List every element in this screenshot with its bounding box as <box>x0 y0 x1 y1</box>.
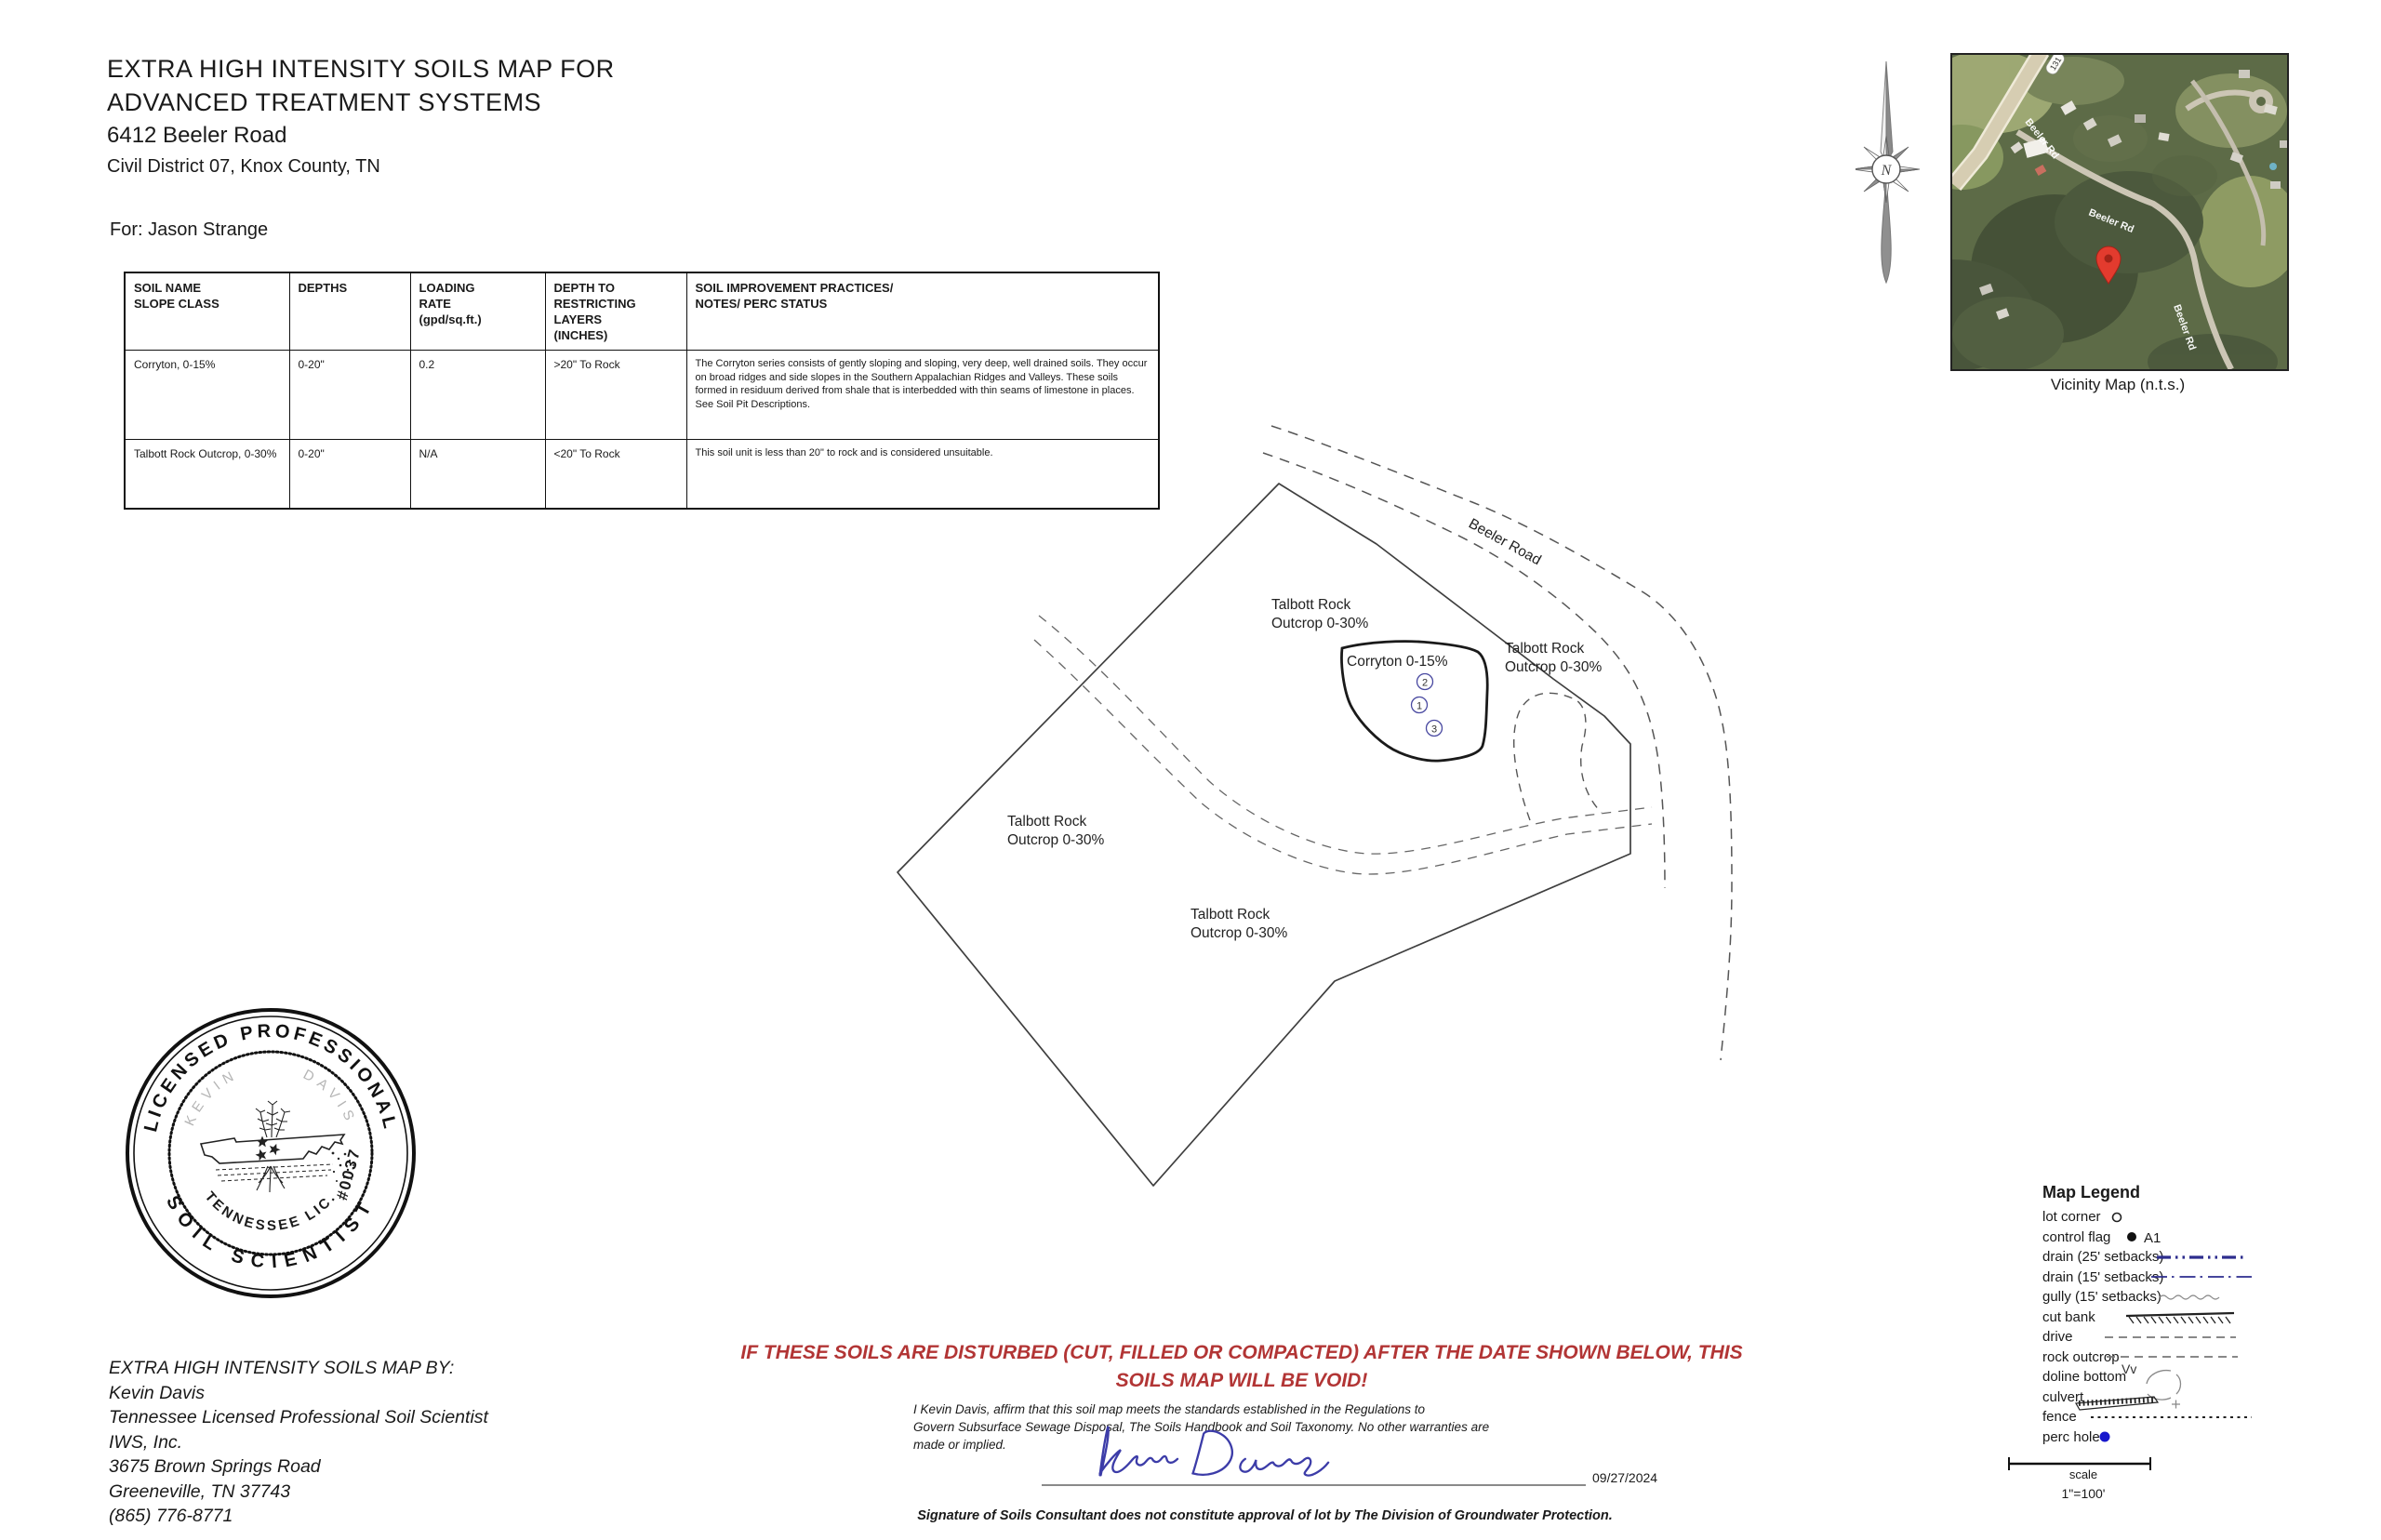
road-name-label: Beeler Road <box>1466 516 1544 569</box>
legend-symbols: A1 Vv <box>2035 1183 2268 1462</box>
soils-map: Beeler Road 2 1 3 Talbott Rock Outcrop 0… <box>884 418 1739 1255</box>
rock-outcrop-vv-icon: Vv <box>2122 1361 2136 1376</box>
signature-line <box>1042 1484 1586 1486</box>
author-city: Greeneville, TN 37743 <box>109 1480 488 1505</box>
rock-outcrop-dashed-area <box>1514 693 1602 820</box>
svg-text:DAVIS: DAVIS <box>300 1067 359 1128</box>
seal-tennessee-art <box>201 1101 354 1192</box>
perc-hole-3: 3 <box>1431 724 1437 736</box>
cell-rate: 0.2 <box>410 351 545 440</box>
svg-text:LICENSED PROFESSIONAL: LICENSED PROFESSIONAL <box>140 1021 401 1135</box>
cut-bank-hatch <box>2129 1317 2230 1323</box>
header-loading-rate: LOADING RATE (gpd/sq.ft.) <box>410 272 545 351</box>
soil-unit-labels: Talbott Rock Outcrop 0-30% Talbott Rock … <box>1007 597 1602 941</box>
header-depth-restricting: DEPTH TO RESTRICTING LAYERS (INCHES) <box>545 272 686 351</box>
author-phone: (865) 776-8771 <box>109 1504 488 1529</box>
svg-text:TENNESSEE LIC.: TENNESSEE LIC. <box>202 1188 340 1234</box>
road-inner-edge <box>1263 453 1665 888</box>
talbott-label: Talbott Rock <box>1271 597 1351 613</box>
author-block: EXTRA HIGH INTENSITY SOILS MAP BY: Kevin… <box>109 1356 488 1529</box>
cell-rate: N/A <box>410 440 545 509</box>
corryton-label: Corryton 0-15% <box>1347 654 1448 670</box>
seal-inner-name-right: DAVIS <box>300 1067 359 1128</box>
culvert-icon <box>2076 1397 2158 1410</box>
header-practices: SOIL IMPROVEMENT PRACTICES/ NOTES/ PERC … <box>686 272 1159 351</box>
signature-date: 09/27/2024 <box>1592 1470 1657 1485</box>
gully-icon <box>2160 1295 2219 1299</box>
cell-restricting: <20" To Rock <box>545 440 686 509</box>
vicinity-caption: Vicinity Map (n.t.s.) <box>1950 376 2285 394</box>
header-soil-name: SOIL NAME SLOPE CLASS <box>125 272 289 351</box>
north-arrow-compass: N <box>1856 54 1921 286</box>
compass-n-letter: N <box>1881 163 1893 179</box>
scale-label: scale <box>2000 1467 2167 1481</box>
perc-hole-2: 2 <box>1422 678 1428 689</box>
page-title-line1: EXTRA HIGH INTENSITY SOILS MAP FOR <box>107 52 615 86</box>
vicinity-map: 131 Beeler Rd Beeler Rd Beeler Rd <box>1950 53 2289 371</box>
seal-license-state: TENNESSEE LIC. <box>202 1188 340 1234</box>
perc-hole-markers: 2 1 3 <box>1412 674 1443 737</box>
cell-soil-name: Corryton, 0-15% <box>125 351 289 440</box>
client-line: For: Jason Strange <box>110 219 268 241</box>
map-legend: Map Legend lot corner control flag drain… <box>2035 1183 2268 1462</box>
talbott-label: Outcrop 0-30% <box>1190 925 1287 941</box>
author-heading: EXTRA HIGH INTENSITY SOILS MAP BY: <box>109 1356 488 1381</box>
seal-license-number: #0037 <box>333 1146 364 1201</box>
scale-value: 1"=100' <box>2000 1486 2167 1501</box>
author-company: IWS, Inc. <box>109 1430 488 1455</box>
talbott-label: Outcrop 0-30% <box>1271 616 1368 631</box>
perc-hole-1: 1 <box>1417 701 1422 712</box>
talbott-label: Outcrop 0-30% <box>1505 659 1602 675</box>
title-block: EXTRA HIGH INTENSITY SOILS MAP FOR ADVAN… <box>107 52 615 178</box>
signature-disclaimer: Signature of Soils Consultant does not c… <box>818 1508 1711 1523</box>
talbott-label: Talbott Rock <box>1505 641 1585 657</box>
perc-hole-icon <box>2100 1432 2110 1442</box>
talbott-label: Outcrop 0-30% <box>1007 832 1104 848</box>
seal-inner-name-left: KEVIN <box>181 1067 241 1129</box>
author-name: Kevin Davis <box>109 1381 488 1406</box>
vicinity-satellite-image: 131 Beeler Rd Beeler Rd Beeler Rd <box>1952 55 2287 369</box>
signature-kevin-davis <box>1086 1417 1393 1490</box>
lot-corner-icon <box>2113 1214 2122 1222</box>
table-header-row: SOIL NAME SLOPE CLASS DEPTHS LOADING RAT… <box>125 272 1159 351</box>
control-flag-tag: A1 <box>2144 1230 2161 1246</box>
page-title-line2: ADVANCED TREATMENT SYSTEMS <box>107 86 615 119</box>
cell-depths: 0-20" <box>289 440 410 509</box>
author-credential: Tennessee Licensed Professional Soil Sci… <box>109 1405 488 1430</box>
cut-bank-icon <box>2126 1313 2234 1316</box>
seal-arc-top-text: LICENSED PROFESSIONAL <box>140 1021 401 1135</box>
professional-seal: LICENSED PROFESSIONAL SOIL SCIENTIST KEV… <box>121 1002 420 1302</box>
cell-soil-name: Talbott Rock Outcrop, 0-30% <box>125 440 289 509</box>
warning-text: IF THESE SOILS ARE DISTURBED (CUT, FILLE… <box>716 1339 1767 1395</box>
header-depths: DEPTHS <box>289 272 410 351</box>
district-line: Civil District 07, Knox County, TN <box>107 156 615 178</box>
author-street: 3675 Brown Springs Road <box>109 1454 488 1480</box>
talbott-label: Talbott Rock <box>1190 907 1270 923</box>
talbott-label: Talbott Rock <box>1007 814 1087 830</box>
control-flag-icon <box>2127 1232 2136 1241</box>
cell-restricting: >20" To Rock <box>545 351 686 440</box>
svg-text:KEVIN: KEVIN <box>181 1067 241 1129</box>
cell-depths: 0-20" <box>289 351 410 440</box>
address-line: 6412 Beeler Road <box>107 123 615 149</box>
